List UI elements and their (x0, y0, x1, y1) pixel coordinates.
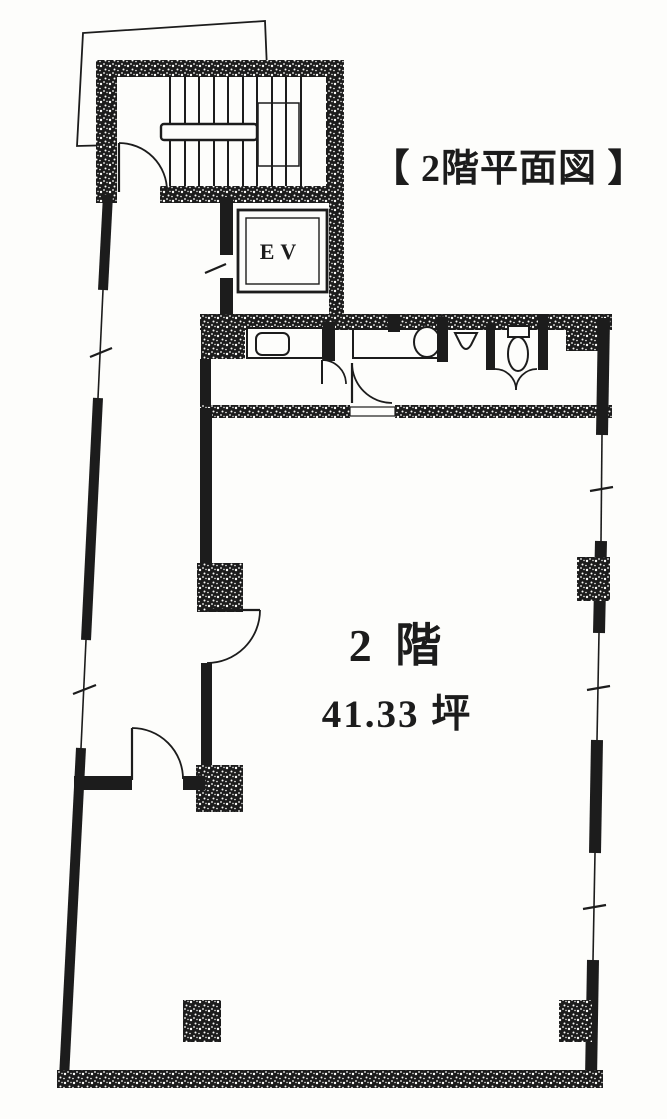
column-bottom-left (183, 1000, 221, 1042)
elevator-label: EV (260, 239, 303, 264)
left-wall-seg1 (103, 195, 108, 290)
left-wall-lower (201, 663, 212, 767)
column-right-mid (577, 557, 610, 601)
stair-wall-top (96, 60, 344, 77)
partition-wall-east (183, 776, 205, 790)
top-wall-right-segment (395, 405, 612, 418)
drawing-title: 【 2階平面図 】 (371, 148, 646, 190)
right-wall-seg1 (602, 318, 604, 435)
stairwell (96, 60, 344, 203)
stair-wall-bottom (160, 186, 344, 203)
floor-plan-drawing: EV (0, 0, 667, 1119)
room-area-label: 41.33 坪 (322, 693, 473, 736)
divider-wall (323, 322, 335, 361)
ev-wall-left-upper (220, 197, 233, 255)
ev-wall-right (329, 197, 344, 330)
toilet-tank (508, 326, 529, 337)
bottom-exterior-wall (57, 1070, 603, 1088)
left-wall-upper (200, 408, 212, 565)
stair-wall-right (326, 60, 344, 203)
band-wall-left (200, 359, 211, 409)
column-band-left (201, 316, 245, 359)
urinal-wall (437, 317, 448, 362)
column-left-mid (197, 563, 243, 612)
vanity-stub-wall (388, 314, 400, 332)
sink-left (256, 333, 289, 355)
right-wall-seg3 (595, 740, 597, 853)
floor-plan-page: EV (0, 0, 667, 1119)
stall-wall-left (486, 324, 495, 370)
stair-handrail (161, 124, 257, 140)
stall-wall-right (538, 314, 548, 370)
sink-oval (414, 327, 440, 357)
room-floor-label: 2 階 (349, 620, 448, 671)
door-threshold (350, 407, 395, 416)
column-right-bottom (559, 1000, 592, 1042)
stair-wall-left (96, 60, 117, 203)
toilet-bowl (508, 337, 528, 371)
top-wall-left-segment (200, 405, 350, 418)
